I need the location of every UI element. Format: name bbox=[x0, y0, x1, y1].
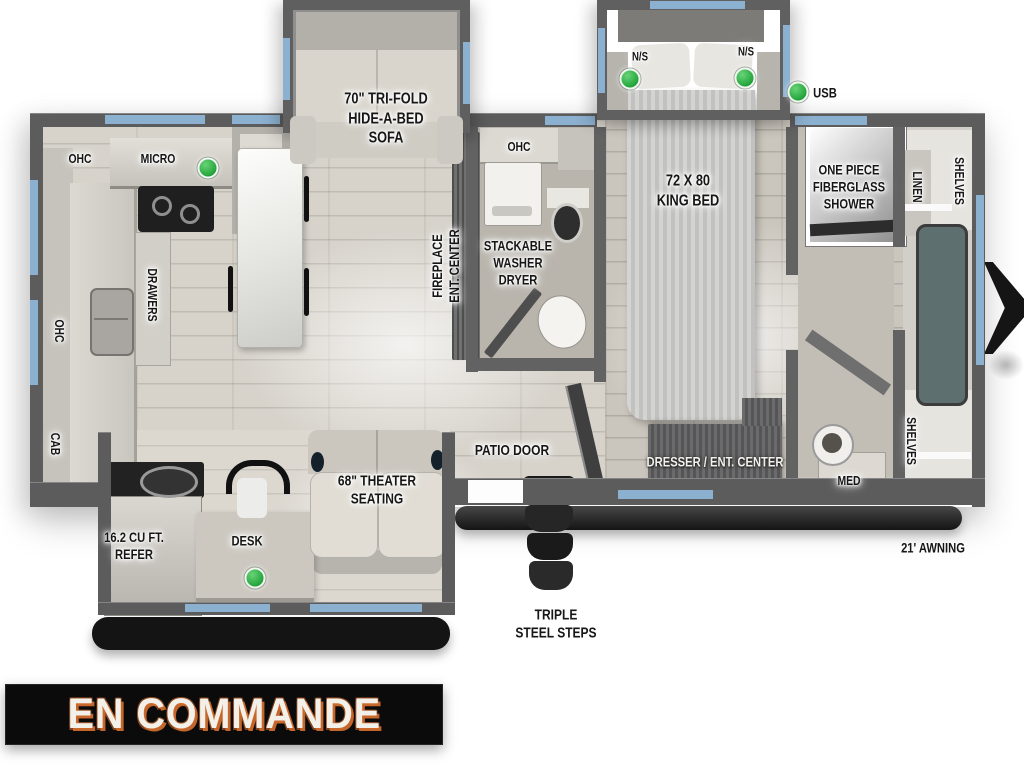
bottom-wall-right-segment bbox=[450, 478, 985, 505]
sofa-arm-right bbox=[437, 116, 463, 164]
label-drawers: DRAWERS bbox=[144, 268, 160, 321]
bathroom-corner-cabinet bbox=[558, 128, 596, 170]
nightstand-right-light-indicator-icon bbox=[735, 68, 756, 89]
label-linen: LINEN bbox=[909, 171, 925, 202]
usb-port-light-indicator-icon bbox=[788, 82, 809, 103]
hitch-shadow bbox=[988, 350, 1024, 380]
theater-cupholder bbox=[311, 452, 324, 472]
shelf-edge bbox=[900, 204, 952, 211]
kitchen-sink bbox=[90, 288, 134, 356]
label-patio-door: PATIO DOOR bbox=[475, 442, 549, 460]
entry-step bbox=[527, 533, 573, 560]
top-wall-window bbox=[545, 116, 595, 125]
bathroom-sink-basin bbox=[822, 433, 842, 453]
slideout-skirt bbox=[92, 617, 450, 650]
kitchen-sink-divider bbox=[94, 318, 128, 320]
patio-door-opening bbox=[468, 480, 523, 503]
label-nightstand-left: N/S bbox=[632, 50, 648, 65]
bottom-wall-window bbox=[618, 490, 713, 499]
floorplan-page: EN COMMANDE OHCMICRO70" TRI-FOLD HIDE-A-… bbox=[0, 0, 1024, 768]
label-triple-steel-steps: TRIPLE STEEL STEPS bbox=[515, 607, 596, 644]
label-stackable-washer-dryer: STACKABLE WASHER DRYER bbox=[484, 237, 552, 288]
kitchen-island bbox=[237, 148, 303, 348]
theater-seat-split bbox=[376, 430, 378, 474]
rv-floorplan: EN COMMANDE OHCMICRO70" TRI-FOLD HIDE-A-… bbox=[0, 0, 1024, 768]
desk-light-indicator-icon bbox=[245, 568, 266, 589]
king-bed-mattress bbox=[627, 90, 755, 420]
microwave-light-indicator-icon bbox=[198, 158, 219, 179]
sofa-slide-window bbox=[283, 38, 290, 100]
trailer-hitch bbox=[984, 262, 1024, 354]
bed-slide-window bbox=[598, 28, 605, 93]
top-wall-window bbox=[795, 116, 867, 125]
sofa-slide-window bbox=[463, 42, 470, 104]
rear-window bbox=[916, 224, 968, 406]
lower-slide-window bbox=[310, 604, 422, 612]
entry-step bbox=[525, 505, 573, 532]
bathroom-left-wall bbox=[466, 127, 478, 372]
label-tri-fold-sofa: 70" TRI-FOLD HIDE-A-BED SOFA bbox=[344, 90, 428, 149]
bottom-wall-left-segment bbox=[30, 482, 105, 507]
label-usb: USB bbox=[813, 84, 837, 101]
label-ohc-bathroom: OHC bbox=[507, 139, 530, 155]
stove-burner bbox=[180, 204, 200, 224]
rear-bath-right-wall-upper bbox=[893, 127, 905, 247]
washer-door bbox=[492, 206, 532, 216]
label-fiberglass-shower: ONE PIECE FIBERGLASS SHOWER bbox=[813, 161, 885, 212]
island-handle bbox=[304, 176, 309, 222]
top-wall-window bbox=[105, 115, 205, 124]
bathroom-bottom-wall bbox=[466, 358, 606, 371]
label-ohc-kitchen-top: OHC bbox=[68, 151, 91, 167]
label-desk: DESK bbox=[231, 532, 262, 549]
label-awning: 21' AWNING bbox=[901, 539, 965, 556]
lower-slide-window bbox=[185, 604, 270, 612]
nightstand-left-light-indicator-icon bbox=[620, 69, 641, 90]
label-ohc-left-wall: OHC bbox=[51, 319, 67, 342]
status-banner-text: EN COMMANDE bbox=[67, 690, 380, 739]
lower-slide-right-wall bbox=[442, 432, 455, 615]
refrigerator-top-lid bbox=[140, 466, 198, 498]
bedroom-right-wall-upper bbox=[786, 127, 798, 275]
top-wall-window bbox=[232, 115, 280, 124]
island-handle bbox=[228, 266, 233, 312]
island-handle bbox=[304, 268, 309, 316]
label-shelves-bottom: SHELVES bbox=[903, 417, 919, 465]
label-nightstand-right: N/S bbox=[738, 45, 754, 60]
entry-step bbox=[529, 561, 573, 590]
label-dresser-ent-center: DRESSER / ENT. CENTER bbox=[647, 453, 784, 470]
label-fireplace-ent-center: FIREPLACE ENT. CENTER bbox=[429, 229, 463, 302]
right-wall-window bbox=[976, 195, 984, 365]
stackable-washer-dryer-unit bbox=[484, 162, 542, 226]
status-banner: EN COMMANDE bbox=[5, 684, 443, 745]
label-cab-left-wall: CAB bbox=[47, 433, 63, 456]
bed-slide-window bbox=[650, 1, 745, 9]
lower-slide-left-wall bbox=[98, 432, 111, 615]
stove-burner bbox=[152, 196, 172, 216]
left-wall-window bbox=[30, 180, 38, 275]
sofa-back bbox=[296, 12, 457, 50]
vanity-sink bbox=[551, 203, 583, 243]
desk-chair-back bbox=[226, 460, 290, 494]
label-refrigerator: 16.2 CU FT. REFER bbox=[104, 529, 164, 563]
label-king-bed: 72 X 80 KING BED bbox=[657, 171, 720, 210]
left-wall-window bbox=[30, 300, 38, 385]
dresser-step bbox=[742, 398, 782, 426]
desk-surface bbox=[196, 512, 314, 604]
bed-slideout bbox=[597, 0, 790, 120]
label-shelves-top: SHELVES bbox=[951, 157, 967, 205]
label-microwave: MICRO bbox=[141, 151, 176, 167]
label-theater-seating: 68" THEATER SEATING bbox=[338, 473, 416, 510]
shelf-edge bbox=[915, 452, 971, 459]
label-med-cabinet: MED bbox=[837, 473, 860, 489]
cooktop-stove bbox=[138, 186, 214, 232]
bedroom-left-wall bbox=[594, 127, 606, 382]
sofa-arm-left bbox=[290, 116, 316, 164]
